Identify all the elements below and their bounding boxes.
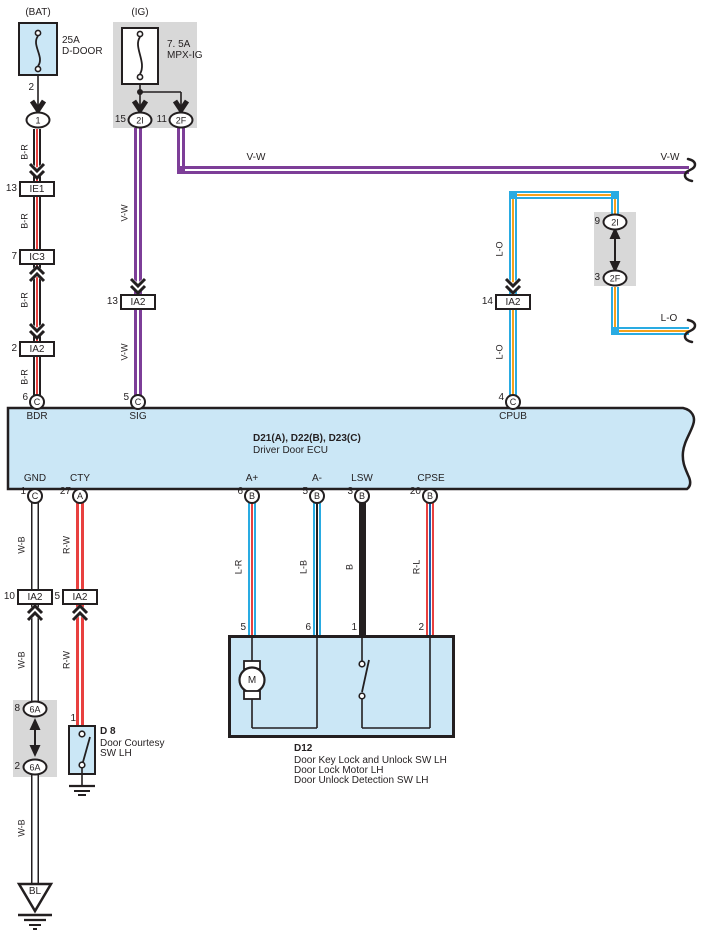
- chevron-down-icon: [29, 164, 45, 178]
- pin-circle-sig: C: [130, 394, 146, 410]
- chevron-down-icon: [130, 279, 146, 293]
- switch-icon: [359, 637, 369, 728]
- connector-2f-top: 2F: [169, 112, 194, 129]
- wire-label: B-R: [21, 369, 30, 385]
- pin-number: 5: [54, 592, 60, 602]
- chevron-down-icon: [29, 324, 45, 338]
- connector-2f-jumper: 2F: [603, 270, 628, 287]
- pin-number: 4: [498, 393, 504, 403]
- pin-number: 20: [410, 487, 421, 497]
- connector-6a-bottom: 6A: [23, 759, 48, 776]
- bat-out-pin: 2: [28, 83, 34, 93]
- pin-circle-a-minus: B: [309, 488, 325, 504]
- pin-number: 13: [6, 184, 17, 194]
- wire-label: W-B: [18, 819, 27, 836]
- pin-number: 2: [14, 762, 20, 772]
- connector-ie1: IE1: [19, 181, 55, 197]
- pin-number: 7: [11, 252, 17, 262]
- pin-number: 1: [351, 623, 357, 633]
- pin-number: 6: [237, 487, 243, 497]
- ecu-pin-label-bdr: BDR: [26, 412, 47, 422]
- pin-number: 8: [14, 704, 20, 714]
- connector-ia2-bdr: IA2: [19, 341, 55, 357]
- connector-6a-top: 6A: [23, 701, 48, 718]
- wire-label: B-R: [21, 144, 30, 160]
- fuse-icon: [35, 30, 40, 71]
- wire-label: V-W: [121, 205, 130, 222]
- chevron-down-icon: [505, 279, 521, 293]
- ecu-pin-label-lsw: LSW: [351, 474, 373, 484]
- connector-ia2-sig: IA2: [120, 294, 156, 310]
- bat-fuse-name: D-DOOR: [62, 47, 103, 57]
- pin-number: 1: [20, 487, 26, 497]
- switch-icon: [79, 731, 90, 768]
- pin-number: 2: [418, 623, 424, 633]
- chevron-up-icon: [27, 606, 43, 620]
- connector-2i-jumper: 2I: [603, 214, 628, 231]
- wire-label: B: [346, 564, 355, 570]
- connector-ia2-cpub: IA2: [495, 294, 531, 310]
- wire-label: B-R: [21, 292, 30, 308]
- d12-id: D12: [294, 744, 312, 754]
- wire-label: L-R: [235, 560, 244, 575]
- pin-number: 13: [107, 297, 118, 307]
- pin-number: 6: [22, 393, 28, 403]
- jumper-arrow-icon: [610, 227, 621, 273]
- pin-number: 5: [123, 393, 129, 403]
- connector-2i-top: 2I: [128, 112, 153, 129]
- wire-label: W-B: [18, 651, 27, 668]
- wire-label: L-O: [496, 344, 505, 359]
- pin-number: 2: [11, 344, 17, 354]
- motor-label: M: [248, 676, 256, 686]
- ground-connector-label: BL: [29, 887, 41, 897]
- pin-number: 10: [4, 592, 15, 602]
- pin-number: 27: [60, 487, 71, 497]
- wire-label: V-W: [121, 344, 130, 361]
- chevron-up-icon: [29, 267, 45, 281]
- wire-label: B-R: [21, 213, 30, 229]
- ecu-name: Driver Door ECU: [253, 446, 328, 456]
- wire-label: V-W: [247, 153, 266, 163]
- connector-ia2-cty: IA2: [62, 589, 98, 605]
- ecu-pin-label-cty: CTY: [70, 474, 90, 484]
- ecu-pin-label-a-plus: A+: [246, 474, 259, 484]
- pin-circle-lsw: B: [354, 488, 370, 504]
- ig-fuse-name: MPX-IG: [167, 51, 203, 61]
- pin-number: 5: [302, 487, 308, 497]
- pin-circle-gnd: C: [27, 488, 43, 504]
- fuse-icon: [137, 31, 142, 79]
- ecu-pin-label-sig: SIG: [129, 412, 146, 422]
- pin-circle-bdr: C: [29, 394, 45, 410]
- ground-icon: [69, 768, 95, 795]
- wire-label: R-L: [413, 560, 422, 575]
- wire-label: R-W: [63, 651, 72, 669]
- pin-number: 11: [157, 115, 167, 125]
- ecu-pin-label-cpub: CPUB: [499, 412, 527, 422]
- ecu-code: D21(A), D22(B), D23(C): [253, 434, 361, 444]
- ecu-pin-label-cpse: CPSE: [417, 474, 444, 484]
- wire-label: L-B: [300, 560, 309, 574]
- ecu-pin-label-a-minus: A-: [312, 474, 322, 484]
- bat-fuse-rating: 25A: [62, 36, 80, 46]
- ig-fuse-rating: 7. 5A: [167, 40, 190, 50]
- pin-number: 3: [347, 487, 353, 497]
- pin-number: 5: [240, 623, 246, 633]
- d8-id: D 8: [100, 727, 116, 737]
- pin-circle-cty: A: [72, 488, 88, 504]
- wire-label: L-O: [496, 241, 505, 256]
- wire-label: W-B: [18, 536, 27, 553]
- pin-circle-cpub: C: [505, 394, 521, 410]
- pin-circle-cpse: B: [422, 488, 438, 504]
- pin-number: 14: [482, 297, 493, 307]
- jumper-arrow-icon: [30, 718, 41, 757]
- connector-ia2-gnd: IA2: [17, 589, 53, 605]
- wire-label: R-W: [63, 536, 72, 554]
- wire-label: V-W: [661, 153, 680, 163]
- connector-ic3: IC3: [19, 249, 55, 265]
- connector-1: 1: [26, 112, 51, 129]
- wire-break-icon: [685, 159, 695, 181]
- ecu-pin-label-gnd: GND: [24, 474, 46, 484]
- pin-number: 9: [594, 217, 600, 227]
- pin-number: 1: [70, 714, 76, 724]
- d12-desc: Door Unlock Detection SW LH: [294, 776, 429, 786]
- chevron-up-icon: [72, 606, 88, 620]
- bat-title: (BAT): [25, 8, 50, 18]
- ig-title: (IG): [131, 8, 148, 18]
- pin-number: 6: [305, 623, 311, 633]
- pin-number: 3: [594, 273, 600, 283]
- pin-circle-a-plus: B: [244, 488, 260, 504]
- d8-desc: SW LH: [100, 749, 132, 759]
- wiring-diagram: IE1 IC3 IA2 IA2 IA2 IA2 IA2 1 2I 2F 2I 2…: [0, 0, 708, 936]
- wire-label: L-O: [661, 314, 678, 324]
- pin-number: 15: [115, 115, 126, 125]
- wire-break-icon: [685, 320, 695, 342]
